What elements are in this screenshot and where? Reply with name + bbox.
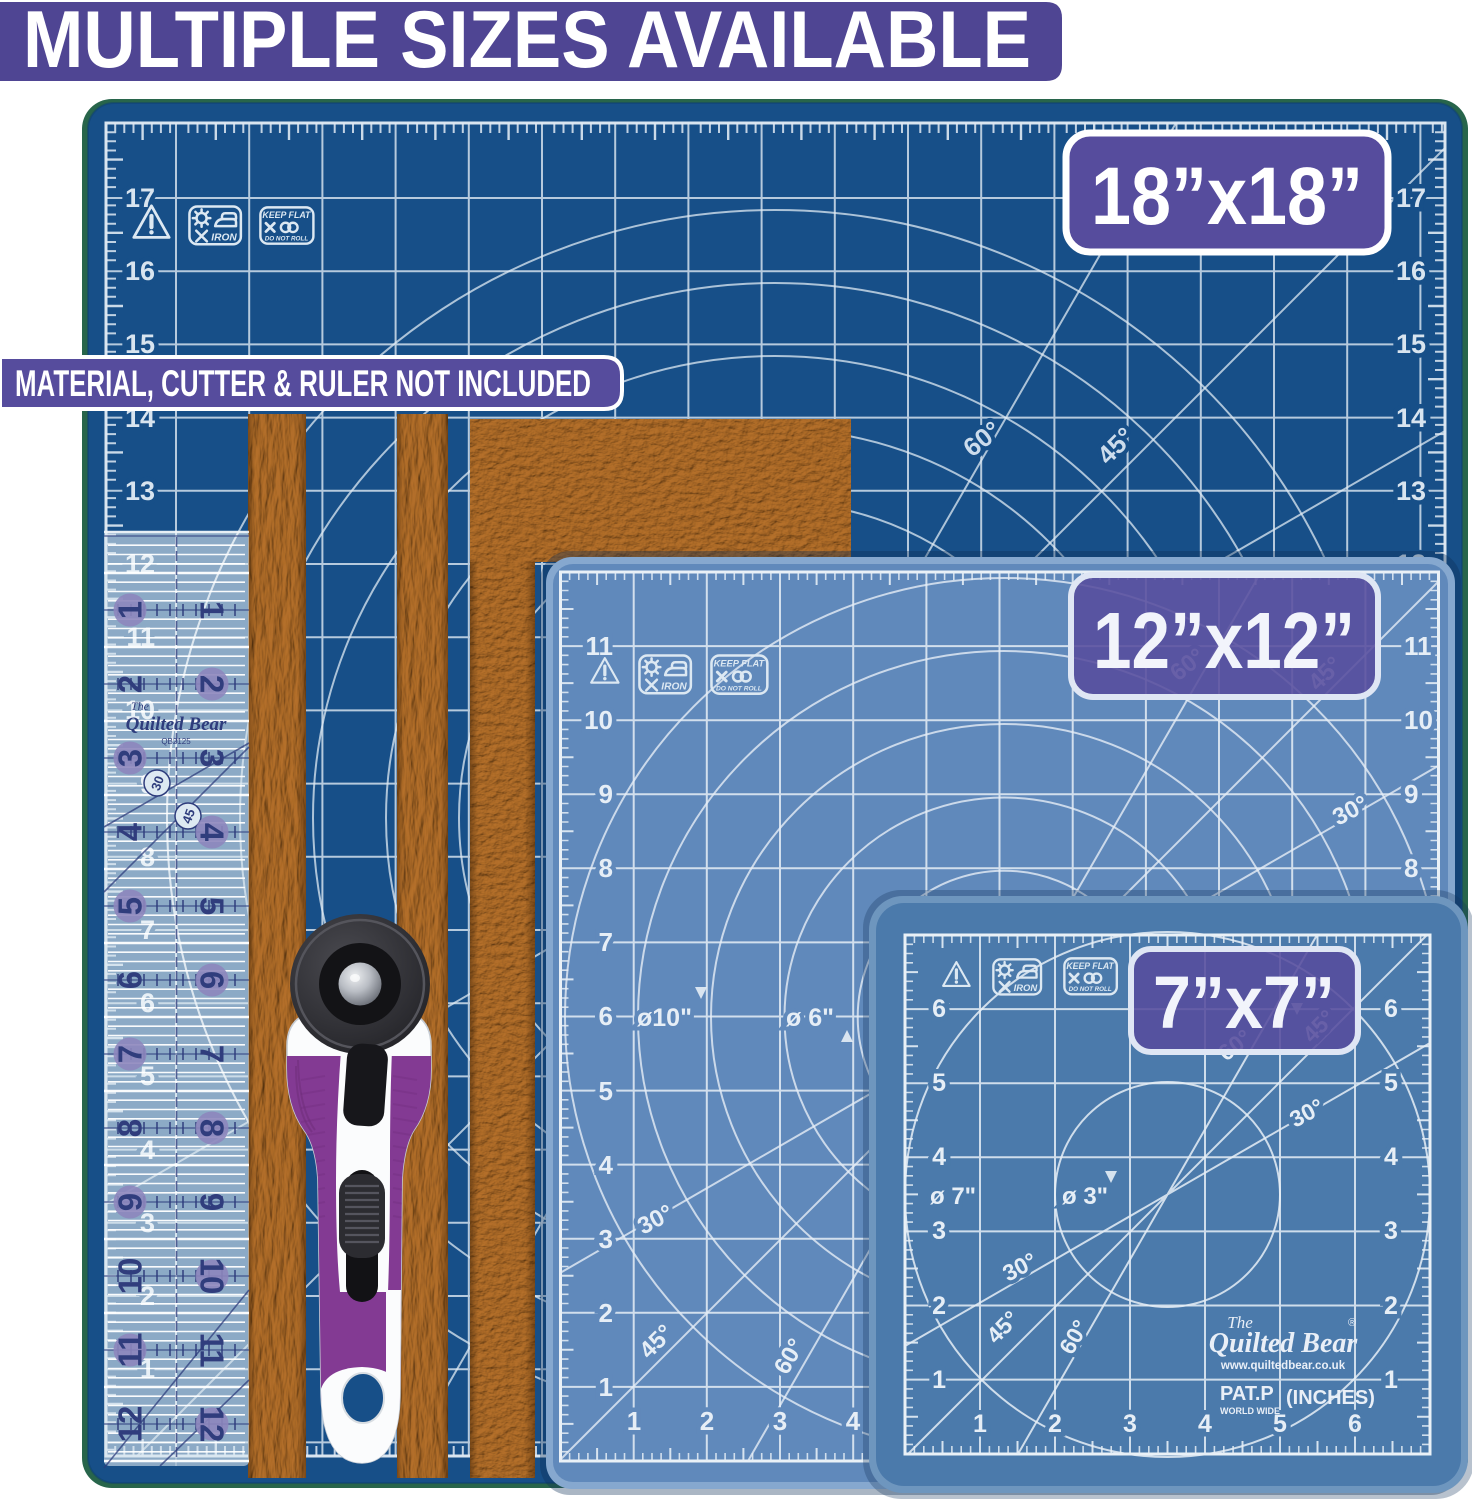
- svg-text:3: 3: [932, 1217, 946, 1245]
- svg-text:www.quiltedbear.co.uk: www.quiltedbear.co.uk: [1220, 1360, 1346, 1372]
- svg-text:11: 11: [112, 1333, 149, 1368]
- svg-text:2: 2: [194, 675, 231, 693]
- svg-text:1: 1: [599, 1372, 613, 1402]
- svg-text:9: 9: [194, 1193, 231, 1211]
- svg-text:1: 1: [1384, 1366, 1398, 1394]
- svg-text:16: 16: [125, 256, 155, 286]
- svg-text:7”x7”: 7”x7”: [1153, 961, 1335, 1044]
- svg-text:7: 7: [194, 1045, 231, 1063]
- svg-text:6: 6: [932, 995, 946, 1023]
- svg-text:8: 8: [194, 1119, 231, 1137]
- svg-text:5: 5: [1384, 1069, 1398, 1097]
- svg-text:8: 8: [140, 842, 155, 872]
- svg-text:11: 11: [1404, 631, 1432, 661]
- svg-text:10: 10: [1404, 705, 1433, 735]
- svg-text:4: 4: [846, 1406, 861, 1436]
- svg-text:4: 4: [599, 1150, 614, 1180]
- svg-text:4: 4: [140, 1135, 155, 1165]
- svg-text:ø 3": ø 3": [1062, 1183, 1108, 1210]
- svg-text:3: 3: [1384, 1217, 1398, 1245]
- svg-text:3: 3: [773, 1406, 787, 1436]
- svg-text:5: 5: [932, 1069, 946, 1097]
- svg-text:6: 6: [599, 1001, 613, 1031]
- svg-text:1: 1: [627, 1406, 641, 1436]
- svg-text:The: The: [131, 699, 150, 713]
- svg-text:1: 1: [973, 1410, 987, 1438]
- svg-text:5: 5: [599, 1076, 613, 1106]
- svg-text:PAT.P: PAT.P: [1220, 1383, 1274, 1405]
- svg-text:15: 15: [1396, 329, 1426, 359]
- svg-text:3: 3: [112, 749, 149, 767]
- svg-text:2: 2: [932, 1292, 946, 1320]
- svg-text:2: 2: [112, 675, 149, 693]
- svg-text:12”x12”: 12”x12”: [1093, 596, 1355, 685]
- svg-text:15: 15: [125, 329, 155, 359]
- svg-text:3: 3: [1123, 1410, 1137, 1438]
- svg-text:9: 9: [1404, 779, 1418, 809]
- svg-text:13: 13: [125, 476, 155, 506]
- svg-text:6: 6: [112, 971, 149, 989]
- svg-text:16: 16: [1396, 256, 1426, 286]
- svg-text:6: 6: [1348, 1410, 1362, 1438]
- svg-text:1: 1: [194, 601, 231, 619]
- svg-text:ø 6": ø 6": [786, 1004, 834, 1032]
- svg-text:13: 13: [1396, 476, 1426, 506]
- svg-text:4: 4: [194, 823, 231, 842]
- svg-text:4: 4: [932, 1143, 946, 1171]
- svg-text:4: 4: [1384, 1143, 1398, 1171]
- svg-text:®: ®: [1348, 1317, 1356, 1329]
- svg-text:12: 12: [194, 1406, 231, 1443]
- svg-text:2: 2: [599, 1298, 613, 1328]
- svg-text:QB2125: QB2125: [161, 737, 191, 746]
- svg-text:2: 2: [700, 1406, 714, 1436]
- svg-text:MATERIAL, CUTTER & RULER NOT I: MATERIAL, CUTTER & RULER NOT INCLUDED: [15, 363, 591, 404]
- svg-text:Quilted Bear: Quilted Bear: [126, 714, 227, 735]
- svg-text:14: 14: [1396, 403, 1426, 433]
- svg-text:MULTIPLE SIZES AVAILABLE: MULTIPLE SIZES AVAILABLE: [23, 0, 1031, 85]
- svg-text:8: 8: [599, 853, 613, 883]
- svg-text:3: 3: [599, 1224, 613, 1254]
- svg-text:WORLD WIDE: WORLD WIDE: [1220, 1406, 1280, 1416]
- svg-text:5: 5: [140, 1061, 155, 1091]
- svg-text:7: 7: [599, 927, 613, 957]
- svg-text:18”x18”: 18”x18”: [1091, 151, 1363, 242]
- svg-text:1: 1: [932, 1366, 946, 1394]
- svg-text:8: 8: [112, 1119, 149, 1137]
- svg-text:(INCHES): (INCHES): [1286, 1387, 1375, 1409]
- svg-text:2: 2: [1048, 1410, 1062, 1438]
- svg-text:5: 5: [112, 897, 149, 915]
- svg-text:6: 6: [140, 988, 155, 1018]
- svg-text:11: 11: [586, 631, 614, 661]
- svg-text:10: 10: [194, 1258, 231, 1295]
- svg-text:3: 3: [194, 749, 231, 767]
- svg-text:10: 10: [112, 1258, 149, 1295]
- svg-text:Quilted Bear: Quilted Bear: [1209, 1328, 1359, 1359]
- svg-text:9: 9: [599, 779, 613, 809]
- svg-text:17: 17: [1396, 183, 1426, 213]
- svg-text:10: 10: [584, 705, 613, 735]
- svg-text:5: 5: [194, 897, 231, 915]
- svg-text:9: 9: [112, 1193, 149, 1211]
- svg-text:4: 4: [112, 822, 149, 841]
- svg-text:7: 7: [112, 1045, 149, 1063]
- svg-text:6: 6: [194, 971, 231, 989]
- svg-text:6: 6: [1384, 995, 1398, 1023]
- svg-text:12: 12: [112, 1406, 149, 1443]
- svg-text:7: 7: [140, 915, 155, 945]
- svg-text:2: 2: [1384, 1292, 1398, 1320]
- svg-text:4: 4: [1198, 1410, 1212, 1438]
- svg-text:1: 1: [112, 601, 149, 619]
- svg-text:11: 11: [194, 1333, 231, 1368]
- svg-text:8: 8: [1404, 853, 1418, 883]
- svg-text:ø10": ø10": [637, 1004, 692, 1032]
- svg-text:ø 7": ø 7": [930, 1183, 976, 1210]
